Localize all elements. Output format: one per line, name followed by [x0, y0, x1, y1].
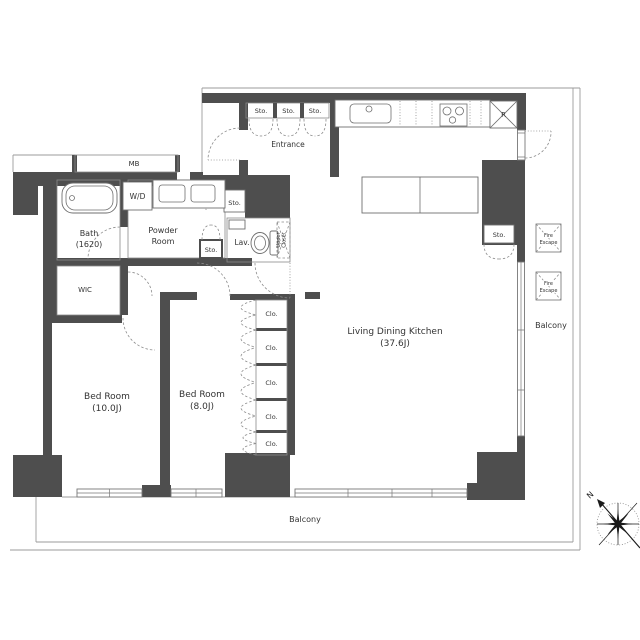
kitchen-counter [335, 100, 490, 127]
closet-label-4: Clo. [265, 413, 277, 421]
kitchen-balcony-door-arc [525, 131, 551, 158]
entrance-sto-label-2: Sto. [282, 107, 295, 115]
compass-north-label: N [585, 490, 595, 501]
floor-plan-page: Fire Escape Fire Escape MB Sto. Sto. Sto… [0, 0, 640, 640]
closet-door-4 [241, 400, 256, 432]
entrance-sto-label-1: Sto. [255, 107, 268, 115]
upper-closet-label-line2: Closet [282, 232, 288, 248]
floor-plan-canvas: Fire Escape Fire Escape MB Sto. Sto. Sto… [0, 0, 640, 640]
entrance-label: Entrance [271, 140, 305, 149]
bedroom2-size-label: (8.0J) [190, 402, 214, 412]
kitchen-island [362, 177, 478, 213]
fire-escape-1-label-line1: Fire [544, 233, 553, 239]
refrigerator-label: R [501, 111, 506, 119]
door-arcs [88, 119, 551, 455]
toilet-icon [251, 231, 278, 255]
bedroom2-window [171, 489, 222, 497]
bedroom2-door-arc [197, 263, 230, 296]
compass-star [603, 509, 633, 539]
entrance-sto-label-3: Sto. [309, 107, 322, 115]
entrance-sto-door-1 [249, 119, 273, 136]
closet-door-3 [241, 365, 256, 400]
ldk-sto-door-arcs [484, 244, 514, 259]
compass-rose: N [585, 490, 640, 548]
bath-label: Bath [80, 229, 99, 238]
fire-escape-2-label-line2: Escape [540, 288, 558, 294]
ldk-label: Living Dining Kitchen [347, 327, 442, 337]
wic-label: WIC [78, 286, 92, 294]
closet-label-3: Clo. [265, 379, 277, 387]
powder-room-label-line2: Room [152, 237, 175, 246]
closet-door-2 [241, 330, 256, 365]
closet-label-5: Clo. [265, 440, 277, 448]
balcony-right-label: Balcony [535, 321, 567, 330]
bedroom1-size-label: (10.0J) [92, 404, 122, 414]
washer-dryer-label: W/D [130, 192, 146, 201]
bedroom2-label: Bed Room [179, 390, 225, 400]
bedroom1-window [77, 489, 142, 497]
fire-escape-1-label-line2: Escape [540, 240, 558, 246]
hall-sto-door-arcs [202, 225, 220, 240]
ldk-east-window [518, 262, 525, 436]
powder-sto-label: Sto. [228, 199, 241, 207]
bedroom1-label: Bed Room [84, 392, 130, 402]
entrance-sto-door-2 [277, 119, 300, 136]
meter-box-outline [75, 155, 178, 172]
vanity-counter [153, 180, 225, 208]
closet-door-1 [241, 300, 256, 330]
lav-cabinet [229, 220, 245, 229]
entrance-door-arc [208, 128, 240, 160]
fire-escape-hatches: Fire Escape Fire Escape [536, 224, 561, 300]
kitchen-balcony-door [518, 130, 526, 160]
wic-door-arc [128, 272, 152, 296]
bath-size-label: (1620) [76, 240, 103, 249]
closet-label-2: Clo. [265, 344, 277, 352]
hall-sto-label: Sto. [205, 246, 218, 254]
entrance-sto-door-3 [304, 119, 326, 136]
meter-box-label: MB [129, 160, 140, 168]
closet-label-1: Clo. [265, 310, 277, 318]
balcony-bottom-label: Balcony [289, 515, 321, 524]
bathtub [62, 183, 117, 213]
closet-door-5 [243, 432, 256, 455]
fire-escape-2-label-line1: Fire [544, 281, 553, 287]
hall-ldk-door-arc [255, 263, 290, 298]
fire-escape-hatch-2: Fire Escape [536, 272, 561, 300]
walls [13, 93, 526, 500]
powder-room-label-line1: Powder [148, 226, 178, 235]
fire-escape-hatch-1: Fire Escape [536, 224, 561, 252]
ldk-sto-label: Sto. [493, 231, 506, 239]
ldk-south-window [295, 489, 467, 497]
lavatory-label: Lav. [234, 238, 249, 247]
bedroom1-door-arc [123, 318, 155, 350]
ldk-size-label: (37.6J) [380, 339, 410, 349]
